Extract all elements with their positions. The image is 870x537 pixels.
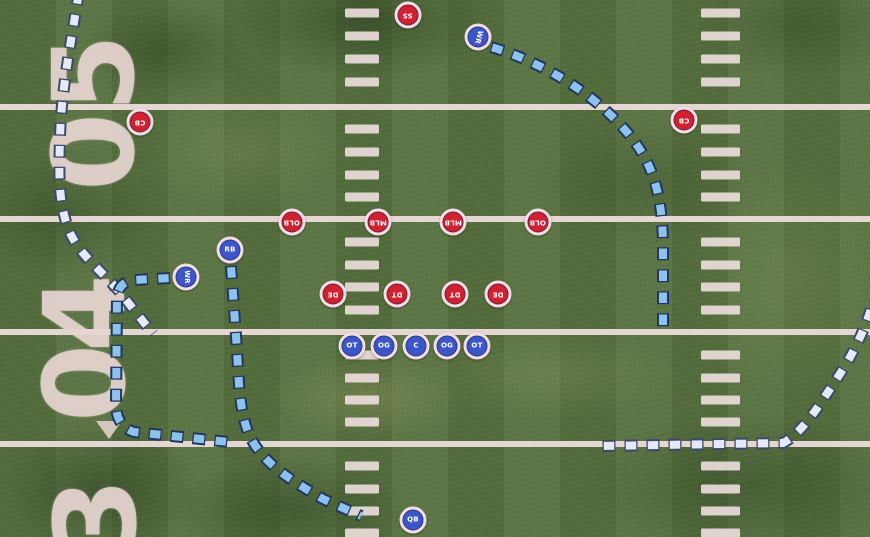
routes-layer (0, 0, 870, 537)
player-marker-og-15[interactable]: OG (371, 333, 398, 360)
player-position-label: CB (135, 119, 146, 126)
player-position-label: OT (346, 343, 357, 350)
player-position-label: C (413, 343, 418, 350)
route-bottom-right-trail-outline[interactable] (599, 309, 870, 446)
player-position-label: MLB (369, 219, 386, 226)
player-position-label: DE (493, 291, 504, 298)
player-position-label: OT (471, 343, 482, 350)
player-position-label: SS (403, 12, 413, 19)
route-bottom-right-trail[interactable] (599, 309, 870, 446)
player-position-label: OG (441, 343, 453, 350)
player-marker-de-13[interactable]: DE (485, 281, 512, 308)
player-marker-og-17[interactable]: OG (434, 333, 461, 360)
player-position-label: DT (450, 291, 461, 298)
player-marker-wr-1[interactable]: WR (465, 24, 492, 51)
player-marker-de-10[interactable]: DE (320, 281, 347, 308)
route-deep-corner[interactable] (491, 47, 663, 331)
player-marker-dt-11[interactable]: DT (384, 281, 411, 308)
player-position-label: DE (328, 291, 339, 298)
player-position-label: QB (407, 517, 419, 524)
player-position-label: RB (224, 247, 235, 254)
player-marker-cb-3[interactable]: CB (671, 107, 698, 134)
player-position-label: MLB (444, 219, 461, 226)
player-marker-c-16[interactable]: C (403, 333, 430, 360)
player-marker-wr-9[interactable]: WR (173, 264, 200, 291)
player-marker-olb-4[interactable]: OLB (279, 209, 306, 236)
player-position-label: OLB (284, 219, 300, 226)
player-marker-olb-7[interactable]: OLB (525, 209, 552, 236)
player-marker-qb-19[interactable]: QB (400, 507, 427, 534)
player-marker-ot-14[interactable]: OT (339, 333, 366, 360)
football-field-view: 50403SSWRCBCBOLBMLBMLBOLBRBWRDEDTDTDEOTO… (0, 0, 870, 537)
player-marker-cb-2[interactable]: CB (127, 109, 154, 136)
player-position-label: DT (392, 291, 403, 298)
player-marker-mlb-6[interactable]: MLB (440, 209, 467, 236)
player-position-label: OG (378, 343, 390, 350)
player-marker-ss-0[interactable]: SS (395, 2, 422, 29)
player-position-label: WR (473, 30, 483, 45)
player-marker-ot-18[interactable]: OT (464, 333, 491, 360)
player-marker-mlb-5[interactable]: MLB (365, 209, 392, 236)
player-marker-rb-8[interactable]: RB (217, 237, 244, 264)
player-position-label: WR (182, 270, 189, 284)
player-position-label: OLB (530, 219, 546, 226)
player-position-label: CB (679, 117, 690, 124)
player-marker-dt-12[interactable]: DT (442, 281, 469, 308)
